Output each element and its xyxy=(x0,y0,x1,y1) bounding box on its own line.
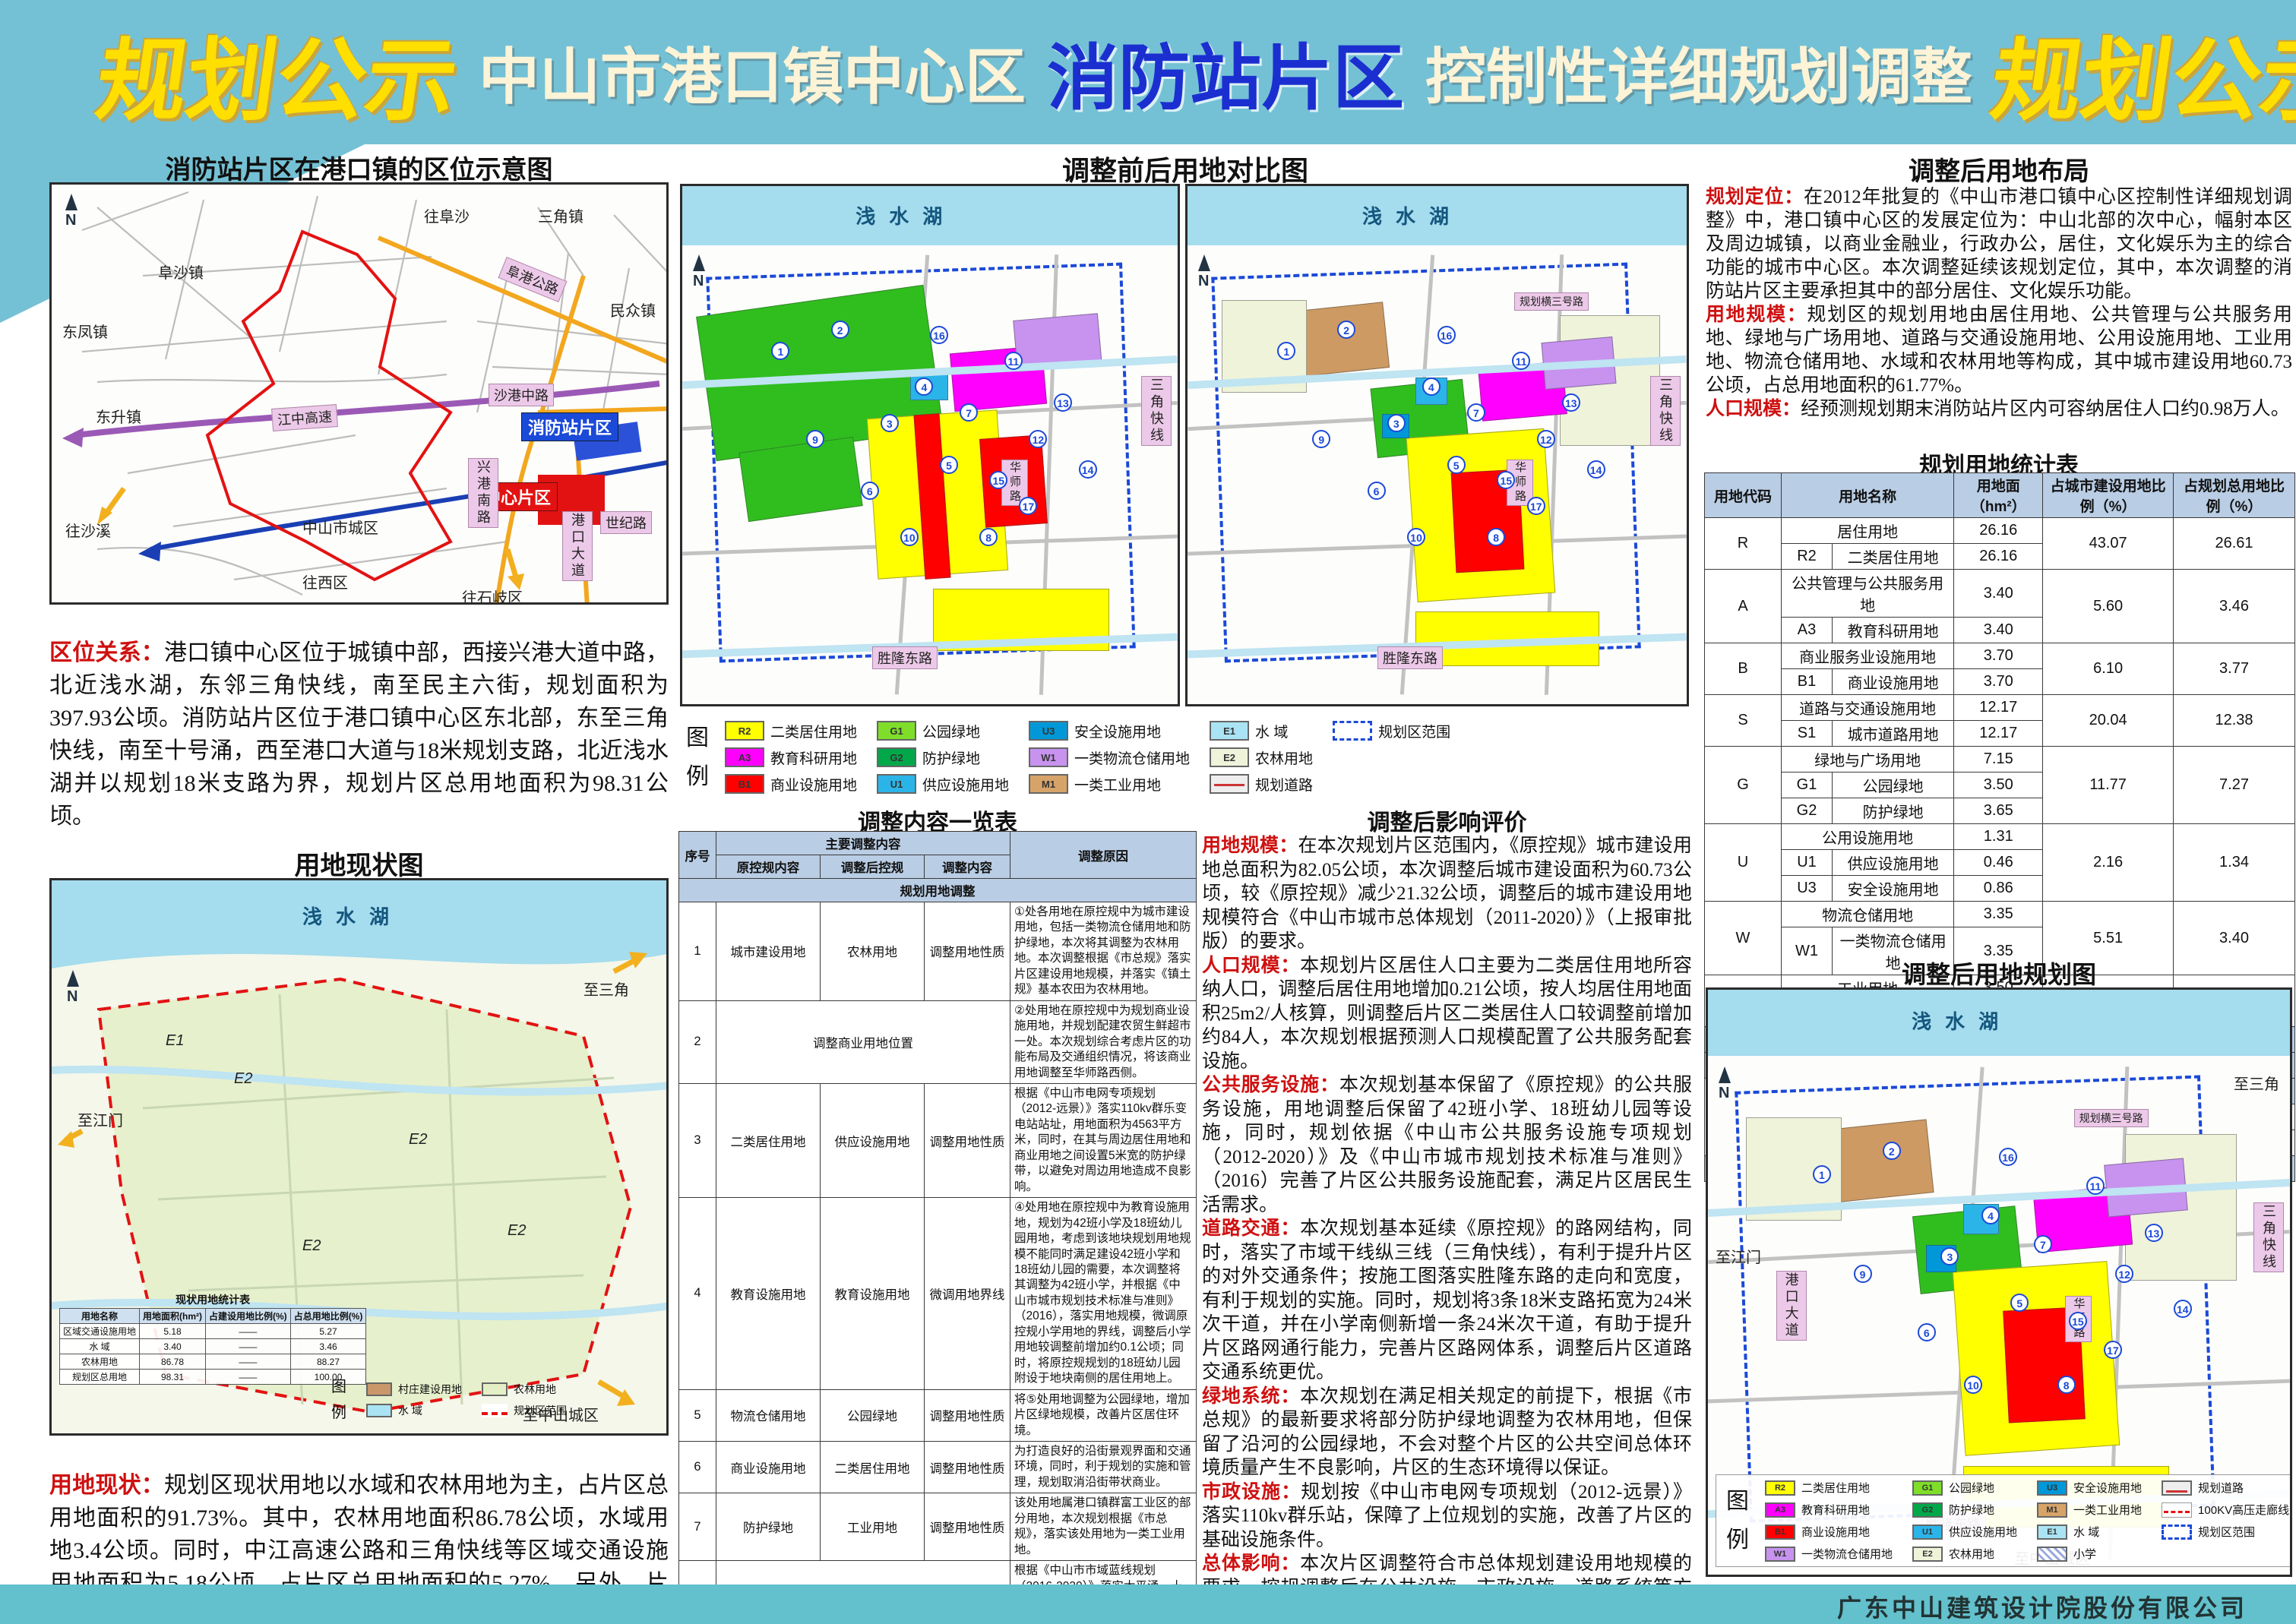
paragraph: 人口规模：经预测规划期末消防站片区内可容纳居住人口约0.98万人。 xyxy=(1706,397,2292,421)
planning-notice-poster: 规划公示 中山市港口镇中心区 消防站片区 控制性详细规划调整 规划公示 消防站片… xyxy=(0,0,2296,1624)
current-landuse-lead: 用地现状： xyxy=(49,1473,164,1498)
current-landuse-stats-table: 现状用地统计表用地名称用地面积(hm²)占建设用地比例(%)占总用地比例(%)区… xyxy=(59,1291,366,1385)
mini-table-row: 区域交通设施用地5.18——5.27 xyxy=(60,1324,366,1339)
stats-header: 占规划总用地比例（%） xyxy=(2173,473,2294,518)
adj-row: 2调整商业用地位置②处用地在原控规中为规划商业设施用地，并规划配建农贸生鲜超市一… xyxy=(679,1000,1197,1083)
legend-item-label: 公园绿地 xyxy=(1949,1480,1994,1496)
zone-marker: 1 xyxy=(771,342,789,360)
legend-title: 图例 xyxy=(325,1374,353,1426)
landuse-swatch: M1 xyxy=(1029,774,1068,794)
map1-label-fusha-town: 阜沙镇 xyxy=(158,261,204,283)
paragraph-lead: 人口规模： xyxy=(1706,399,1801,419)
zone-marker: 12 xyxy=(2115,1265,2133,1283)
comparison-legend: 图例R2二类居住用地A3教育科研用地B1商业设施用地G1公园绿地G2防护绿地U1… xyxy=(684,719,1450,796)
landuse-swatch: U3 xyxy=(2037,1480,2067,1496)
zone-marker: 9 xyxy=(1312,430,1330,448)
landuse-swatch: E1 xyxy=(2037,1524,2067,1540)
legend-item: E2农林用地 xyxy=(1210,747,1313,768)
zone-marker: 4 xyxy=(1981,1206,2000,1224)
legend-item: A3教育科研用地 xyxy=(725,747,857,768)
legend-item: U3安全设施用地 xyxy=(1029,721,1190,741)
to-sanjiao-label: 至三角 xyxy=(2234,1072,2279,1094)
legend-item-label: 一类工业用地 xyxy=(1074,774,1161,795)
evaluation-text: 用地规模：在本次规划片区范围内，《原控规》城市建设用地总面积为82.05公顷，本… xyxy=(1202,834,1692,1624)
map2-legend: 图例村庄建设用地水 域农林用地规划区范围 xyxy=(325,1374,567,1426)
stats-group-row: S道路与交通设施用地12.1720.0412.38 xyxy=(1705,695,2295,721)
legend-item-label: 安全设施用地 xyxy=(2073,1480,2142,1496)
road3-label: 规划横三号路 xyxy=(1514,292,1589,311)
zone-marker: 17 xyxy=(1527,497,1545,515)
paragraph-body: 本次规划基本延续《原控规》的路网结构，同时，落实了市域干线纵三线（三角快线），有… xyxy=(1202,1218,1692,1382)
paragraph: 绿地系统：本次规划在满足相关规定的前提下，根据《市总规》的最新要求将部分防护绿地… xyxy=(1202,1385,1692,1480)
expressway-label: 三角快线 xyxy=(2253,1202,2284,1272)
stats-group-row: U公用设施用地1.312.161.34 xyxy=(1705,824,2295,850)
legend-item: W1一类物流仓储用地 xyxy=(1029,747,1190,768)
banner-title-mid1: 中山市港口镇中心区 xyxy=(479,28,1026,116)
legend-item: W1一类物流仓储用地 xyxy=(1765,1546,1893,1562)
paragraph-body: 经预测规划期末消防站片区内可容纳居住人口约0.98万人。 xyxy=(1801,399,2290,419)
paragraph-lead: 用地规模： xyxy=(1706,305,1807,325)
zone-marker: 2 xyxy=(831,321,849,339)
zone-marker: 6 xyxy=(861,482,879,500)
legend-item-label: 农林用地 xyxy=(514,1382,556,1397)
legend-item-label: 供应设施用地 xyxy=(922,774,1009,795)
legend-item: E1水 域 xyxy=(2037,1524,2142,1540)
legend-item-label: 二类居住用地 xyxy=(770,721,857,741)
mini-table-header: 用地面积(hm²) xyxy=(140,1309,206,1324)
paragraph: 人口规模：本规划片区居住人口主要为二类居住用地所容纳人口，调整后居住用地增加0.… xyxy=(1202,954,1692,1074)
expressway-label: 三角快线 xyxy=(1141,376,1172,446)
landuse-swatch xyxy=(366,1404,392,1417)
zone-marker: 5 xyxy=(1447,456,1466,474)
to-jiangmen-label: 至江门 xyxy=(1716,1245,1761,1267)
legend-item-label: 教育科研用地 xyxy=(770,747,857,768)
mini-table-title: 现状用地统计表 xyxy=(59,1291,366,1308)
paragraph-lead: 绿地系统： xyxy=(1202,1386,1300,1407)
landuse-swatch xyxy=(482,1382,508,1396)
road3-label: 规划横三号路 xyxy=(2074,1109,2149,1127)
banner-title-mid3: 控制性详细规划调整 xyxy=(1425,28,1972,116)
map1-label-to-fusha: 往阜沙 xyxy=(424,204,470,226)
stats-group-row: R居住用地26.1643.0726.61 xyxy=(1705,518,2295,544)
layout-title: 调整后用地布局 xyxy=(1706,150,2292,188)
paragraph-body: 本次规划基本保留了《原控规》的公共服务设施，用地调整后保留了42班小学、18班幼… xyxy=(1202,1075,1692,1215)
map2-label-to-jiangmen: 至江门 xyxy=(77,1108,123,1130)
paragraph: 公共服务设施：本次规划基本保留了《原控规》的公共服务设施，用地调整后保留了42班… xyxy=(1202,1073,1692,1217)
legend-item-label: 村庄建设用地 xyxy=(398,1382,462,1397)
hv-corridor-swatch xyxy=(2162,1502,2192,1518)
legend-item: U1供应设施用地 xyxy=(1912,1524,2017,1540)
zone-marker: 9 xyxy=(806,430,824,448)
zone-marker: 1 xyxy=(1277,342,1295,360)
zone-marker: 10 xyxy=(900,528,919,546)
legend-item-label: 水 域 xyxy=(398,1403,422,1418)
plan-boundary-swatch xyxy=(2162,1524,2192,1540)
landuse-swatch: A3 xyxy=(725,747,764,767)
map1-label-xinggang-road: 兴港南路 xyxy=(468,458,498,528)
legend-item: B1商业设施用地 xyxy=(725,774,857,795)
zone-marker: 6 xyxy=(1918,1323,1936,1341)
zone-marker: 13 xyxy=(2145,1224,2163,1242)
map1-label-sanjiao-town: 三角镇 xyxy=(538,204,583,226)
footer-credit: 广东中山建筑设计院股份有限公司 2018.06 xyxy=(1837,1589,2296,1624)
legend-item: E2农林用地 xyxy=(1912,1546,2017,1562)
legend-item: 规划区范围 xyxy=(2162,1524,2289,1540)
final-map-legend: 图例R2二类居住用地A3教育科研用地B1商业设施用地W1一类物流仓储用地G1公园… xyxy=(1716,1474,2292,1567)
legend-item-label: 商业设施用地 xyxy=(1801,1524,1870,1540)
map1-label-fire-station-area: 消防站片区 xyxy=(521,412,618,441)
expressway-label: 三角快线 xyxy=(1650,376,1681,446)
legend-item-label: 一类物流仓储用地 xyxy=(1801,1546,1893,1562)
landuse-swatch: B1 xyxy=(1765,1524,1795,1540)
stats-header: 占城市建设用地比例（%） xyxy=(2043,473,2174,518)
location-relation-body: 港口镇中心区位于城镇中部，西接兴港大道中路，北近浅水湖，东邻三角快线，南至民主六… xyxy=(49,640,669,829)
landuse-swatch: G2 xyxy=(1912,1502,1943,1518)
mini-table-row: 农林用地86.78——88.27 xyxy=(60,1354,366,1370)
legend-item: M1一类工业用地 xyxy=(1029,774,1190,795)
map2-zone-code: E1 xyxy=(166,1032,184,1050)
mini-table-row: 规划区总用地98.31——100.00 xyxy=(60,1370,366,1385)
legend-item: G1公园绿地 xyxy=(877,721,1009,741)
footer-bar: 广东中山建筑设计院股份有限公司 2018.06 xyxy=(0,1585,2296,1624)
zone-marker: 14 xyxy=(1587,460,1605,479)
zone-marker: 16 xyxy=(930,326,948,344)
map2-zone-code: E2 xyxy=(234,1070,252,1088)
landuse-swatch: R2 xyxy=(1765,1480,1795,1496)
legend-item: G2防护绿地 xyxy=(877,747,1009,768)
map1-label-minzhong-town: 民众镇 xyxy=(610,299,656,321)
adj-row: 5物流仓储用地公园绿地调整用地性质将⑤处用地调整为公园绿地，增加片区绿地规模，改… xyxy=(679,1389,1197,1441)
shenglong-road-label: 胜隆东路 xyxy=(872,646,938,669)
original-plan-map: 原控规用地规划图 浅水湖N三角快线胜隆东路华师路1234567891011121… xyxy=(680,184,1180,706)
landuse-swatch: G1 xyxy=(877,721,916,741)
legend-item-label: 教育科研用地 xyxy=(1801,1502,1870,1518)
map1-title: 消防站片区在港口镇的区位示意图 xyxy=(49,149,669,186)
landuse-swatch: M1 xyxy=(2037,1502,2067,1518)
landuse-swatch: G1 xyxy=(1912,1480,1943,1496)
legend-item-label: 规划道路 xyxy=(1255,774,1313,795)
landuse-swatch: A3 xyxy=(1765,1502,1795,1518)
paragraph-lead: 人口规模： xyxy=(1202,956,1300,976)
mini-table-header: 用地名称 xyxy=(60,1309,140,1324)
adjusted-plan-map: 调整后用地规划图 浅水湖N三角快线胜隆东路华师路规划横三号路1234567891… xyxy=(1185,184,1689,706)
legend-grid: 村庄建设用地水 域农林用地规划区范围 xyxy=(366,1382,567,1418)
adj-row: 4教育设施用地教育设施用地微调用地界线④处用地在原控规中为教育设施用地，规划为4… xyxy=(679,1198,1197,1389)
zone-marker: 9 xyxy=(1854,1265,1872,1283)
current-landuse-map: N 浅水湖 至江门 至三角 至中山城区 E2 E2 E2 E2 E1 现状用地统… xyxy=(49,878,669,1436)
legend-item: 规划道路 xyxy=(2162,1480,2289,1496)
landuse-swatch: W1 xyxy=(1765,1547,1795,1562)
zone-marker: 14 xyxy=(1079,460,1097,479)
legend-item-label: 规划道路 xyxy=(2198,1480,2244,1496)
map2-zone-code: E2 xyxy=(409,1131,427,1148)
stats-group-row: G绿地与广场用地7.1511.777.27 xyxy=(1705,747,2295,773)
landuse-swatch: B1 xyxy=(725,774,764,794)
banner: 规划公示 中山市港口镇中心区 消防站片区 控制性详细规划调整 规划公示 xyxy=(0,0,2296,144)
legend-item: 农林用地 xyxy=(482,1382,567,1397)
zone-marker: 5 xyxy=(940,456,958,474)
map1-label-to-shiqi: 往石岐区 xyxy=(462,586,523,605)
zone-marker: 12 xyxy=(1537,430,1555,448)
zone-marker: 6 xyxy=(1368,482,1386,500)
legend-item-label: 规划区范围 xyxy=(2198,1524,2255,1540)
map1-label-shiji-road: 世纪路 xyxy=(600,511,652,534)
paragraph: 市政设施：规划按《中山市电网专项规划（2012-远景）》落实110kv群乐站，保… xyxy=(1202,1480,1692,1553)
legend-item: G1公园绿地 xyxy=(1912,1480,2017,1496)
landuse-swatch xyxy=(366,1382,392,1396)
legend-item: M1一类工业用地 xyxy=(2037,1502,2142,1518)
legend-item: U3安全设施用地 xyxy=(2037,1480,2142,1496)
adj-row: 6商业设施用地二类居住用地调整用地性质为打造良好的沿街景观界面和交通环境，同时，… xyxy=(679,1441,1197,1493)
zone-marker: 10 xyxy=(1407,528,1425,546)
location-relation-paragraph: 区位关系：港口镇中心区位于城镇中部，西接兴港大道中路，北近浅水湖，东邻三角快线，… xyxy=(49,637,669,833)
map1-label-shagang-road: 沙港中路 xyxy=(489,384,554,406)
compass-icon: N xyxy=(1198,254,1210,290)
lake-label: 浅水湖 xyxy=(1362,201,1463,229)
map1-label-dongfeng-town: 东凤镇 xyxy=(62,320,108,342)
mini-table-header: 占总用地比例(%) xyxy=(290,1309,366,1324)
stats-group-row: B商业服务业设施用地3.706.103.77 xyxy=(1705,643,2295,669)
legend-item-label: 二类居住用地 xyxy=(1801,1480,1870,1496)
legend-item: R2二类居住用地 xyxy=(1765,1480,1893,1496)
school-swatch xyxy=(2037,1547,2067,1562)
banner-title-mid2: 消防站片区 xyxy=(1047,21,1404,124)
final-plan-map: 浅水湖N三角快线胜隆东路华师路规划横三号路港口大道至江门至三角至中山城区1234… xyxy=(1706,987,2292,1577)
zone-marker: 17 xyxy=(2104,1341,2122,1359)
paragraph-lead: 规划定位： xyxy=(1706,187,1804,207)
paragraph-lead: 道路交通： xyxy=(1202,1218,1300,1239)
landuse-swatch: E2 xyxy=(1912,1547,1943,1562)
zone-marker: 8 xyxy=(2057,1376,2076,1394)
landuse-swatch: W1 xyxy=(1029,747,1068,767)
zone-marker: 12 xyxy=(1029,430,1047,448)
legend-item-label: 商业设施用地 xyxy=(770,774,857,795)
legend-item-label: 一类工业用地 xyxy=(2073,1502,2142,1518)
landuse-swatch: E1 xyxy=(1210,721,1249,741)
legend-title: 图例 xyxy=(684,719,711,796)
map2-label-to-sanjiao: 至三角 xyxy=(583,978,629,1000)
paragraph: 规划定位：在2012年批复的《中山市港口镇中心区控制性详细规划调整》中，港口镇中… xyxy=(1706,185,2292,303)
legend-item-label: 农林用地 xyxy=(1949,1546,1994,1562)
map2-label-lake: 浅水湖 xyxy=(302,902,403,930)
location-map: N 往阜沙 三角镇 阜沙镇 阜港公路 民众镇 东凤镇 东升镇 江中高速 沙港中路… xyxy=(49,182,669,605)
legend-item-label: 公园绿地 xyxy=(922,721,980,741)
legend-item: A3教育科研用地 xyxy=(1765,1502,1893,1518)
legend-title: 图例 xyxy=(1724,1482,1751,1559)
paragraph-lead: 用地规模： xyxy=(1202,836,1298,856)
legend-item: R2二类居住用地 xyxy=(725,721,857,741)
legend-item: 村庄建设用地 xyxy=(366,1382,462,1397)
map1-label-jiangzhong-expressway: 江中高速 xyxy=(271,404,338,431)
planned-road-swatch xyxy=(1210,774,1249,794)
zone-marker: 14 xyxy=(2174,1300,2192,1318)
map1-label-zhongshan-city: 中山市城区 xyxy=(302,516,378,538)
stats-group-row: W物流仓储用地3.355.513.40 xyxy=(1705,902,2295,927)
zone-marker: 16 xyxy=(1999,1148,2017,1166)
legend-item-label: 水 域 xyxy=(2073,1524,2099,1540)
paragraph: 道路交通：本次规划基本延续《原控规》的路网结构，同时，落实了市域干线纵三线（三角… xyxy=(1202,1217,1692,1385)
shenglong-road-label: 胜隆东路 xyxy=(1377,646,1443,669)
legend-item-label: 农林用地 xyxy=(1255,747,1313,768)
map2-title: 用地现状图 xyxy=(49,845,669,882)
legend-item-label: 一类物流仓储用地 xyxy=(1074,747,1190,768)
landuse-swatch: R2 xyxy=(725,721,764,741)
legend-item: B1商业设施用地 xyxy=(1765,1524,1893,1540)
legend-item: E1水 域 xyxy=(1210,721,1313,741)
legend-item: 规划道路 xyxy=(1210,774,1313,795)
landuse-swatch: U1 xyxy=(1912,1524,1943,1540)
landuse-swatch: E2 xyxy=(1210,747,1249,767)
final-map-title: 调整后用地规划图 xyxy=(1706,956,2292,991)
legend-item: G2防护绿地 xyxy=(1912,1502,2017,1518)
legend-item-label: 安全设施用地 xyxy=(1074,721,1161,741)
legend-item: 100KV高压走廊线 xyxy=(2162,1502,2289,1518)
stats-header-row: 用地代码用地名称用地面（hm²）占城市建设用地比例（%）占规划总用地比例（%） xyxy=(1705,473,2295,518)
evaluation-title: 调整后影响评价 xyxy=(1202,804,1692,837)
legend-item-label: 供应设施用地 xyxy=(1949,1524,2017,1540)
adj-section-row: 规划用地调整 xyxy=(679,879,1197,902)
zone-marker: 13 xyxy=(1054,393,1072,412)
map1-label-to-shaxi: 往沙溪 xyxy=(65,519,111,541)
zone-marker: 2 xyxy=(1883,1142,1901,1160)
paragraph-lead: 公共服务设施： xyxy=(1202,1075,1339,1095)
compass-icon: N xyxy=(65,194,77,229)
legend-item: 小学 xyxy=(2037,1546,2142,1562)
adjustment-table: 序号主要调整内容调整原因原控规内容调整后控规调整内容规划用地调整1城市建设用地农… xyxy=(678,831,1197,1624)
map1-label-to-xiqu: 往西区 xyxy=(302,570,348,592)
legend-grid: R2二类居住用地A3教育科研用地B1商业设施用地G1公园绿地G2防护绿地U1供应… xyxy=(725,721,1450,795)
legend-item: 水 域 xyxy=(366,1403,462,1418)
landuse-swatch: U3 xyxy=(1029,721,1068,741)
zone-marker: 16 xyxy=(1437,326,1456,344)
landuse-swatch: G2 xyxy=(877,747,916,767)
legend-item: 规划区范围 xyxy=(1333,721,1450,741)
mini-table-header: 占建设用地比例(%) xyxy=(206,1309,291,1324)
stats-header: 用地名称 xyxy=(1782,473,1954,518)
comparison-title: 调整前后用地对比图 xyxy=(680,149,1690,188)
legend-item-label: 小学 xyxy=(2073,1546,2096,1562)
compass-icon: N xyxy=(1719,1066,1731,1102)
adj-header-row: 序号主要调整内容调整原因 xyxy=(679,832,1197,855)
banner-title-right: 规划公示 xyxy=(1984,8,2296,137)
legend-item-label: 防护绿地 xyxy=(922,747,980,768)
zone-marker: 11 xyxy=(1004,352,1023,370)
plan-boundary-swatch xyxy=(1333,721,1372,741)
adj-row: 3二类居住用地供应设施用地调整用地性质根据《中山市电网专项规划（2012-远景）… xyxy=(679,1083,1197,1197)
legend-item: 规划区范围 xyxy=(482,1403,567,1418)
legend-item-label: 规划区范围 xyxy=(514,1403,567,1418)
mini-table-row: 水 域3.40——3.46 xyxy=(60,1339,366,1354)
stats-group-row: A公共管理与公共服务用地3.405.603.46 xyxy=(1705,570,2295,618)
legend-item-label: 100KV高压走廊线 xyxy=(2198,1502,2289,1518)
map1-label-gangkou-avenue: 港口大道 xyxy=(562,511,593,581)
plan-boundary-swatch xyxy=(482,1404,508,1417)
planned-road-swatch xyxy=(2162,1480,2192,1496)
zone-marker: 4 xyxy=(1422,378,1441,396)
legend-item: U1供应设施用地 xyxy=(877,774,1009,795)
zone-marker: 1 xyxy=(1813,1165,1831,1183)
location-relation-lead: 区位关系： xyxy=(49,640,164,665)
gangkou-avenue-label: 港口大道 xyxy=(1776,1271,1807,1341)
lake-label: 浅水湖 xyxy=(855,201,956,229)
map1-label-dongsheng-town: 东升镇 xyxy=(96,405,141,427)
zone-marker: 13 xyxy=(1562,393,1580,412)
layout-text: 规划定位：在2012年批复的《中山市港口镇中心区控制性详细规划调整》中，港口镇中… xyxy=(1706,185,2292,421)
zone-marker: 3 xyxy=(881,414,899,432)
landuse-swatch: U1 xyxy=(877,774,916,794)
stats-header: 用地代码 xyxy=(1705,473,1782,518)
banner-title-left: 规划公示 xyxy=(90,8,466,137)
map2-zone-code: E2 xyxy=(302,1237,321,1255)
legend-item-label: 规划区范围 xyxy=(1378,721,1450,741)
compass-icon: N xyxy=(693,254,705,290)
paragraph-lead: 市政设施： xyxy=(1202,1482,1301,1502)
paragraph-lead: 总体影响： xyxy=(1202,1553,1300,1574)
lake-label: 浅水湖 xyxy=(1912,1006,2012,1035)
legend-grid: R2二类居住用地A3教育科研用地B1商业设施用地W1一类物流仓储用地G1公园绿地… xyxy=(1765,1480,2289,1562)
legend-item-label: 防护绿地 xyxy=(1949,1502,1994,1518)
zone-marker: 3 xyxy=(1387,414,1406,432)
zone-marker: 15 xyxy=(2069,1312,2087,1330)
adj-row: 7防护绿地工业用地调整用地性质该处用地属港口镇群富工业区的部分用地，本次规划根据… xyxy=(679,1493,1197,1561)
paragraph: 用地规模：规划区的规划用地由居住用地、公共管理与公共服务用地、绿地与广场用地、道… xyxy=(1706,303,2292,397)
compass-icon: N xyxy=(67,970,79,1006)
legend-item-label: 水 域 xyxy=(1255,721,1288,741)
paragraph: 用地规模：在本次规划片区范围内，《原控规》城市建设用地总面积为82.05公顷，本… xyxy=(1202,834,1692,954)
adj-row: 1城市建设用地农林用地调整用地性质①处各用地在原控规中为城市建设用地，包括一类物… xyxy=(679,902,1197,1001)
map2-zone-code: E2 xyxy=(508,1222,526,1240)
stats-header: 用地面（hm²） xyxy=(1954,473,2043,518)
